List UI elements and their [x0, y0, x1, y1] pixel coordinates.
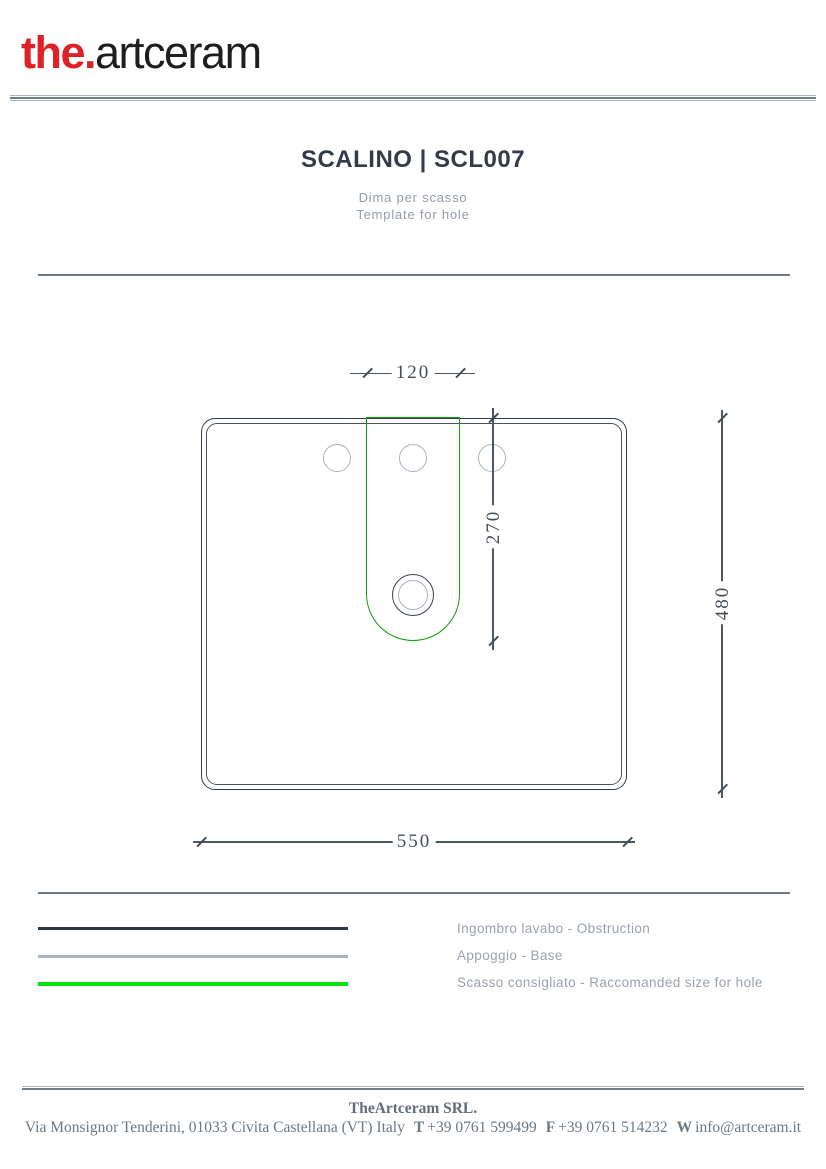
- header-divider: [10, 95, 816, 101]
- dimension-value-480: 480: [712, 582, 734, 625]
- legend-label-obstruction: Ingombro lavabo - Obstruction: [457, 921, 650, 936]
- legend-swatch-obstruction: [38, 927, 348, 930]
- footer-company-name: TheArtceram SRL.: [0, 1100, 826, 1118]
- footer-fax-label: F: [546, 1119, 555, 1136]
- legend-swatch-base: [38, 955, 348, 958]
- tap-hole-left: [323, 444, 351, 472]
- title-divider: [38, 274, 790, 276]
- legend-divider: [38, 892, 790, 894]
- subtitle-english: Template for hole: [0, 207, 826, 222]
- footer-address-line: Via Monsignor Tenderini, 01033 Civita Ca…: [0, 1119, 826, 1137]
- brand-logo-artceram: artceram: [95, 27, 261, 78]
- page-title: SCALINO | SCL007: [0, 146, 826, 174]
- brand-logo-the: the.: [21, 27, 95, 78]
- legend-swatch-hole: [38, 982, 348, 986]
- legend-label-base: Appoggio - Base: [457, 948, 563, 963]
- dimension-value-550: 550: [393, 831, 436, 853]
- footer-email: info@artceram.it: [695, 1119, 801, 1136]
- drain-hole-inner: [398, 580, 428, 610]
- footer-web-label: W: [677, 1119, 693, 1136]
- dimension-value-270: 270: [483, 506, 505, 549]
- subtitle-italian: Dima per scasso: [0, 190, 826, 205]
- footer-divider: [22, 1086, 804, 1090]
- datasheet-page: the.artceram SCALINO | SCL007 Dima per s…: [0, 0, 826, 1169]
- footer-address-text: Via Monsignor Tenderini, 01033 Civita Ca…: [25, 1119, 405, 1136]
- tap-hole-center: [399, 444, 427, 472]
- footer-phone: +39 0761 599499: [427, 1119, 537, 1136]
- brand-logo: the.artceram: [21, 28, 261, 78]
- dimension-value-120: 120: [392, 362, 435, 384]
- footer-fax: +39 0761 514232: [558, 1119, 668, 1136]
- footer-phone-label: T: [414, 1119, 424, 1136]
- legend-label-hole: Scasso consigliato - Raccomanded size fo…: [457, 975, 763, 990]
